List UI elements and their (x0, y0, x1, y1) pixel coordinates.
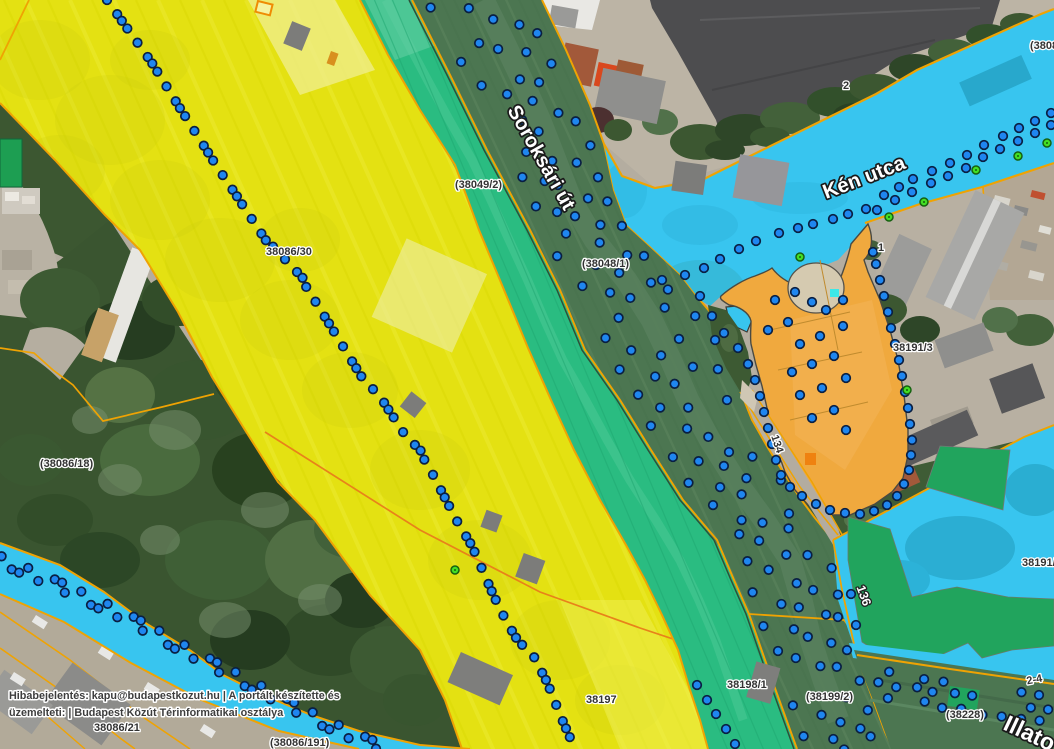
svg-text:(38086/18): (38086/18) (40, 458, 94, 470)
svg-text:1: 1 (878, 242, 884, 254)
svg-text:38191/3: 38191/3 (893, 342, 933, 354)
svg-text:38086/30: 38086/30 (266, 246, 312, 258)
svg-text:38198/1: 38198/1 (727, 679, 767, 691)
svg-text:üzemelteti: | Budapest Közút T: üzemelteti: | Budapest Közút Térinformat… (9, 707, 284, 719)
svg-text:38086/21: 38086/21 (94, 722, 140, 734)
svg-text:Hibabejelentés: kapu@budapestk: Hibabejelentés: kapu@budapestkozut.hu | … (9, 690, 340, 702)
svg-text:38197: 38197 (586, 694, 617, 706)
svg-text:38191/4: 38191/4 (1022, 557, 1054, 569)
svg-text:(38199/2): (38199/2) (806, 691, 853, 703)
svg-text:(38086/191): (38086/191) (270, 737, 330, 749)
svg-text:(38228): (38228) (946, 709, 984, 721)
svg-text:(38049/2): (38049/2) (455, 179, 502, 191)
svg-text:(38048/1): (38048/1) (582, 258, 629, 270)
svg-text:2: 2 (843, 80, 849, 92)
svg-text:(3808: (3808 (1030, 40, 1054, 52)
